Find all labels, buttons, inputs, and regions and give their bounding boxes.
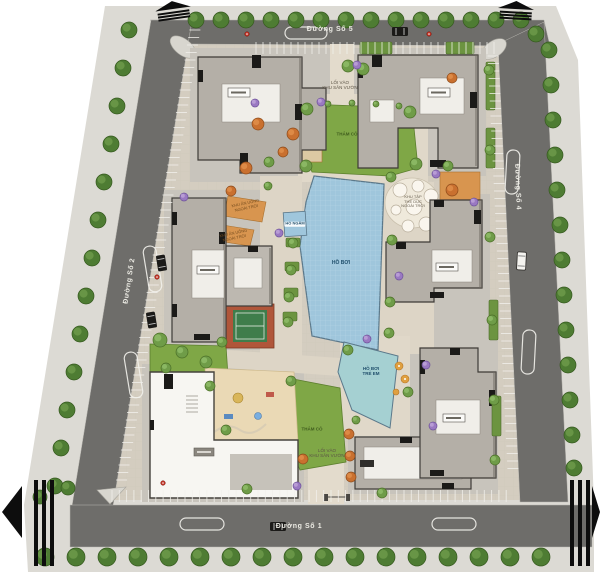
tree-marker <box>103 136 119 152</box>
tree-marker <box>484 65 494 75</box>
hydrant-marker <box>155 275 160 280</box>
tree-marker <box>352 416 360 424</box>
tree-marker <box>115 60 131 76</box>
tree-marker <box>408 548 426 566</box>
tree-marker <box>191 548 209 566</box>
tree-marker <box>275 229 283 237</box>
tree-marker <box>284 548 302 566</box>
label-kids-pool: HỒ BƠI TRẺ EM <box>362 366 379 376</box>
tree-marker <box>439 548 457 566</box>
tree-marker <box>78 288 94 304</box>
tree-marker <box>373 101 379 107</box>
tree-marker <box>301 103 313 115</box>
tree-marker <box>286 376 296 386</box>
tree-marker <box>161 363 171 373</box>
tree-marker <box>346 472 356 482</box>
tree-marker <box>264 182 272 190</box>
tree-marker <box>385 297 395 307</box>
tree-marker <box>566 460 582 476</box>
building-block-mid-left <box>172 198 226 342</box>
tree-marker <box>160 548 178 566</box>
tree-marker <box>387 235 397 245</box>
tree-marker <box>501 548 519 566</box>
tree-marker <box>403 387 413 397</box>
tree-marker <box>213 12 229 28</box>
tree-marker <box>288 238 298 248</box>
tree-marker <box>404 106 416 118</box>
tree-marker <box>363 12 379 28</box>
tree-marker <box>532 548 550 566</box>
tree-marker <box>61 481 75 495</box>
tree-marker <box>84 250 100 266</box>
street-label-top: Đường Số 5 <box>307 26 353 34</box>
hydrant-marker <box>161 481 166 486</box>
tree-marker <box>528 26 544 42</box>
tree-marker <box>422 361 430 369</box>
tree-marker <box>463 12 479 28</box>
tree-marker <box>470 548 488 566</box>
tree-marker <box>552 217 568 233</box>
tree-marker <box>221 425 231 435</box>
tree-marker <box>66 364 82 380</box>
tree-marker <box>377 548 395 566</box>
site-plan-drawing <box>0 0 600 582</box>
tree-marker <box>396 103 402 109</box>
car-marker <box>392 27 408 36</box>
tree-marker <box>346 548 364 566</box>
tree-marker <box>432 170 440 178</box>
tree-marker <box>438 12 454 28</box>
tree-marker <box>413 12 429 28</box>
tree-marker <box>343 345 353 355</box>
tree-marker <box>353 61 361 69</box>
car-marker <box>517 252 527 270</box>
community-house <box>224 246 272 306</box>
tree-marker <box>222 548 240 566</box>
tree-marker <box>264 157 274 167</box>
tree-marker <box>317 98 325 106</box>
hydrant-marker <box>245 32 250 37</box>
tree-marker <box>67 548 85 566</box>
tree-marker <box>410 158 422 170</box>
tree-marker <box>342 60 354 72</box>
tree-marker <box>240 162 252 174</box>
tree-marker <box>485 232 495 242</box>
label-garden-entrance-top: LỐI VÀO KHU SÂN VƯỜN <box>322 80 357 90</box>
tree-marker <box>200 356 212 368</box>
tree-marker <box>447 73 457 83</box>
label-garden-entrance-bottom: LỐI VÀO KHU SÂN VƯỜN <box>309 448 344 458</box>
building-label-box-dark <box>360 460 374 467</box>
tree-marker <box>315 548 333 566</box>
tree-marker <box>293 482 301 490</box>
tree-marker <box>286 265 296 275</box>
tree-marker <box>72 326 88 342</box>
site-plan: Đường Số 5 Đường Số 4 Đường Số 2 Đường S… <box>0 0 600 582</box>
tree-marker <box>253 548 271 566</box>
tree-marker <box>547 147 563 163</box>
tree-marker <box>564 427 580 443</box>
tree-marker <box>153 333 167 347</box>
tree-marker <box>90 212 106 228</box>
tree-marker <box>560 357 576 373</box>
label-swimming-pool: HỒ BƠI <box>332 261 350 267</box>
tree-marker <box>176 346 188 358</box>
label-lawn-bottom: THẢM CỎ <box>302 426 323 431</box>
tree-marker <box>121 22 137 38</box>
tree-marker <box>363 335 371 343</box>
label-lawn-top: THẢM CỎ <box>337 131 358 136</box>
tree-marker <box>384 328 394 338</box>
tree-marker <box>549 182 565 198</box>
tree-marker <box>470 198 478 206</box>
tree-marker <box>429 422 437 430</box>
tree-marker <box>109 98 125 114</box>
tree-marker <box>217 337 227 347</box>
tree-marker <box>386 172 396 182</box>
label-soak-pool: HỒ NGÂM <box>284 222 305 227</box>
tree-marker <box>345 451 355 461</box>
tree-marker <box>251 99 259 107</box>
tree-marker <box>325 101 331 107</box>
tree-marker <box>226 186 236 196</box>
tree-marker <box>487 315 497 325</box>
tree-marker <box>489 395 499 405</box>
tree-marker <box>558 322 574 338</box>
playground <box>205 368 298 442</box>
tree-marker <box>242 484 252 494</box>
street-label-bottom: Đường Số 1 <box>276 523 322 531</box>
tree-marker <box>298 454 308 464</box>
tree-marker <box>205 381 215 391</box>
tree-marker <box>180 193 188 201</box>
tree-marker <box>287 128 299 140</box>
tree-marker <box>556 287 572 303</box>
tree-marker <box>263 12 279 28</box>
tree-marker <box>377 488 387 498</box>
tree-marker <box>485 145 495 155</box>
tree-marker <box>543 77 559 93</box>
tree-marker <box>59 402 75 418</box>
tree-marker <box>388 12 404 28</box>
tree-marker <box>284 292 294 302</box>
tree-marker <box>446 184 458 196</box>
tree-marker <box>278 147 288 157</box>
tree-marker <box>96 174 112 190</box>
tree-marker <box>344 429 354 439</box>
tree-marker <box>53 440 69 456</box>
tree-marker <box>129 548 147 566</box>
hydrant-marker <box>427 32 432 37</box>
tree-marker <box>238 12 254 28</box>
tree-marker <box>300 160 312 172</box>
tree-marker <box>395 272 403 280</box>
label-outdoor-gym: KHU TẬP THỂ DỤC NGOÀI TRỜI <box>401 195 425 209</box>
tree-marker <box>188 12 204 28</box>
tree-marker <box>562 392 578 408</box>
tree-marker <box>349 100 355 106</box>
tree-marker <box>545 112 561 128</box>
deck-top-right <box>440 172 480 202</box>
tree-marker <box>47 478 63 494</box>
tree-marker <box>554 252 570 268</box>
street-label-right: Đường Số 4 <box>512 164 522 211</box>
tree-marker <box>252 118 264 130</box>
tennis-court <box>226 304 274 348</box>
tree-marker <box>283 317 293 327</box>
tree-marker <box>443 161 453 171</box>
tree-marker <box>288 12 304 28</box>
tree-marker <box>98 548 116 566</box>
tree-marker <box>490 455 500 465</box>
road-bottom <box>70 505 592 547</box>
tree-marker <box>541 42 557 58</box>
